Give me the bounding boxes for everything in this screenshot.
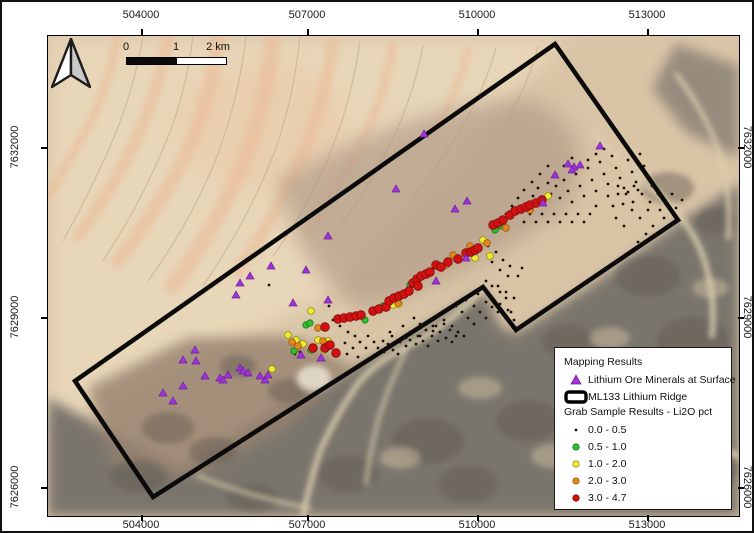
sample-dot <box>485 317 488 320</box>
sample-dot <box>268 284 271 287</box>
sample-dot <box>415 343 418 346</box>
sample-dot <box>651 185 654 188</box>
scale-bar-rect <box>126 57 227 65</box>
axis-label-top: 504000 <box>123 9 160 21</box>
sample-dot <box>671 193 674 196</box>
sample-dot <box>473 323 476 326</box>
sample-dot <box>649 201 652 204</box>
sample-dot <box>531 181 534 184</box>
sample-dot <box>409 339 412 342</box>
sample-dot <box>269 366 276 373</box>
sample-dot <box>617 185 620 188</box>
sample-dot <box>451 341 454 344</box>
sample-dot <box>397 353 400 356</box>
sample-dot <box>681 199 684 202</box>
sample-dot <box>444 258 453 267</box>
legend-class-label: 2.0 - 3.0 <box>588 475 627 487</box>
sample-dot <box>577 213 580 216</box>
sample-dot <box>461 311 464 314</box>
sample-dot <box>567 190 570 193</box>
sample-dot <box>382 340 385 343</box>
sample-dot <box>485 280 488 283</box>
sample-dot <box>357 311 366 320</box>
sample-dot <box>354 335 357 338</box>
sample-dot <box>449 329 452 332</box>
sample-dot <box>485 301 488 304</box>
axis-tick <box>41 147 47 149</box>
legend-class-row: 2.0 - 3.0 <box>564 472 725 489</box>
sample-dot <box>367 335 370 338</box>
sample-dot <box>637 189 640 192</box>
sample-dot <box>579 185 582 188</box>
axis-tick <box>738 147 744 149</box>
sample-dot <box>443 323 446 326</box>
sample-dot <box>623 225 626 228</box>
axis-label-left: 7629000 <box>9 296 21 339</box>
sample-dot <box>652 225 655 228</box>
sample-dot <box>627 191 630 194</box>
sample-dot <box>537 187 540 190</box>
sample-dot <box>455 305 458 308</box>
class-dot-icon <box>564 458 588 470</box>
sample-dot <box>409 331 412 334</box>
axis-tick <box>41 317 47 319</box>
sample-dot <box>435 325 438 328</box>
sample-dot <box>419 335 422 338</box>
sample-dot <box>309 344 318 353</box>
sample-dot <box>510 311 513 314</box>
sample-dot <box>595 205 598 208</box>
axis-tick <box>477 29 479 35</box>
sample-dot <box>633 185 636 188</box>
legend-grab-classes: 0.0 - 0.50.5 - 1.01.0 - 2.02.0 - 3.03.0 … <box>564 421 725 506</box>
sample-dot <box>414 282 423 291</box>
sample-dot <box>532 195 535 198</box>
sample-dot <box>383 351 386 354</box>
sample-dot <box>499 269 502 272</box>
sample-dot <box>295 343 302 350</box>
axis-tick <box>477 515 479 521</box>
sample-dot <box>491 297 494 300</box>
map-legend: Mapping Results Lithium Ore Minerals at … <box>554 347 732 510</box>
sample-dot <box>632 201 635 204</box>
sample-dot <box>332 349 341 358</box>
sample-dot <box>307 320 313 326</box>
sample-dot <box>344 342 347 345</box>
sample-dot <box>393 343 396 346</box>
sample-dot <box>509 265 512 268</box>
sample-dot <box>641 193 644 196</box>
legend-class-row: 1.0 - 2.0 <box>564 455 725 472</box>
sample-dot <box>643 165 646 168</box>
sample-dot <box>427 345 430 348</box>
sample-dot <box>499 291 502 294</box>
sample-dot <box>474 244 483 253</box>
axis-tick <box>307 29 309 35</box>
sample-dot <box>595 190 598 193</box>
sample-dot <box>583 221 586 224</box>
sample-dot <box>571 221 574 224</box>
sample-dot <box>405 337 408 340</box>
axis-tick <box>41 487 47 489</box>
sample-dot <box>611 155 614 158</box>
sample-dot <box>521 267 524 270</box>
legend-class-label: 0.0 - 0.5 <box>588 424 627 436</box>
sample-dot <box>583 195 586 198</box>
sample-dot <box>503 225 510 232</box>
sample-dot <box>591 179 594 182</box>
sample-dot <box>517 197 520 200</box>
sample-dot <box>454 255 463 264</box>
sample-dot <box>315 325 322 332</box>
legend-item-label: Lithium Ore Minerals at Surface <box>588 374 736 386</box>
sample-dot <box>477 293 480 296</box>
sample-dot <box>619 177 622 180</box>
sample-dot <box>603 173 606 176</box>
sample-dot <box>402 325 405 328</box>
sample-dot <box>523 221 526 224</box>
sample-dot <box>289 339 296 346</box>
sample-dot <box>451 325 454 328</box>
sample-dot <box>502 259 505 262</box>
sample-dot <box>587 159 590 162</box>
sample-dot <box>479 311 482 314</box>
sample-dot <box>499 303 502 306</box>
sample-dot <box>607 195 610 198</box>
sample-dot <box>571 201 574 204</box>
sample-dot <box>463 335 466 338</box>
sample-dot <box>308 308 315 315</box>
class-dot-icon <box>564 492 588 504</box>
sample-dot <box>507 275 510 278</box>
legend-mapping-items: Lithium Ore Minerals at SurfaceML133 Lit… <box>564 371 725 405</box>
sample-dot <box>352 347 355 350</box>
sample-dot <box>665 201 668 204</box>
sample-dot <box>505 297 508 300</box>
axis-label-left: 7632000 <box>9 126 21 169</box>
sample-dot <box>523 189 526 192</box>
sample-dot <box>622 203 625 206</box>
map-figure-page: 0 1 2 km Mapping Results Lithium Ore Min… <box>0 0 754 533</box>
scale-label-0: 0 <box>123 41 129 53</box>
sample-dot <box>645 233 648 236</box>
sample-dot <box>497 285 500 288</box>
axis-label-top: 507000 <box>289 9 326 21</box>
sample-dot <box>657 193 660 196</box>
sample-dot <box>595 153 598 156</box>
legend-class-label: 3.0 - 4.7 <box>588 492 627 504</box>
sample-dot <box>346 353 349 356</box>
sample-dot <box>547 165 550 168</box>
legend-item-label: ML133 Lithium Ridge <box>588 391 687 403</box>
sample-dot <box>439 331 442 334</box>
sample-dot <box>617 193 620 196</box>
triangle-symbol-icon <box>564 373 588 387</box>
sample-dot <box>615 167 618 170</box>
sample-dot <box>539 173 542 176</box>
class-dot-icon <box>564 475 588 487</box>
sample-dot <box>589 213 592 216</box>
axis-tick <box>141 29 143 35</box>
sample-dot <box>391 335 394 338</box>
sample-dot <box>425 329 428 332</box>
sample-dot <box>373 341 376 344</box>
sample-dot <box>639 153 642 156</box>
sample-dot <box>563 179 566 182</box>
sample-dot <box>377 347 380 350</box>
sample-dot <box>487 253 494 260</box>
sample-dot <box>328 305 331 308</box>
legend-class-row: 0.5 - 1.0 <box>564 438 725 455</box>
sample-dot <box>399 341 402 344</box>
sample-dot <box>631 171 634 174</box>
sample-dot <box>647 209 650 212</box>
scale-label-1: 1 <box>173 41 179 53</box>
sample-dot <box>426 268 435 277</box>
scale-bar-black-half <box>127 58 177 64</box>
sample-dot <box>285 332 292 339</box>
sample-dot <box>405 345 408 348</box>
sample-dot <box>635 181 638 184</box>
boundary-symbol-icon <box>564 390 588 404</box>
sample-dot <box>413 317 416 320</box>
legend-class-row: 0.0 - 0.5 <box>564 421 725 438</box>
legend-item: ML133 Lithium Ridge <box>564 388 725 405</box>
sample-dot <box>625 193 628 196</box>
sample-dot <box>547 221 550 224</box>
scale-label-2km: 2 km <box>206 41 230 53</box>
axis-label-top: 510000 <box>459 9 496 21</box>
sample-dot <box>659 209 662 212</box>
sample-dot <box>559 197 562 200</box>
sample-dot <box>491 261 494 264</box>
sample-dot <box>607 183 610 186</box>
sample-dot <box>555 185 558 188</box>
sample-dot <box>612 205 615 208</box>
sample-dot <box>467 317 470 320</box>
axis-tick <box>307 515 309 521</box>
sample-dot <box>392 349 395 352</box>
legend-class-row: 3.0 - 4.7 <box>564 489 725 506</box>
sample-dot <box>389 331 392 334</box>
axis-tick <box>141 515 143 521</box>
sample-dot <box>473 305 476 308</box>
legend-item: Lithium Ore Minerals at Surface <box>564 371 725 388</box>
sample-dot <box>639 217 642 220</box>
axis-label-left: 7626000 <box>9 466 21 509</box>
axis-tick <box>647 29 649 35</box>
sample-dot <box>631 209 634 212</box>
sample-dot <box>495 251 498 254</box>
sample-dot <box>445 337 448 340</box>
sample-dot <box>422 340 425 343</box>
sample-dot <box>535 221 538 224</box>
sample-dot <box>675 207 678 210</box>
sample-dot <box>437 340 440 343</box>
sample-dot <box>365 347 368 350</box>
legend-class-label: 0.5 - 1.0 <box>588 441 627 453</box>
sample-dot <box>491 285 494 288</box>
axis-tick <box>738 487 744 489</box>
sample-dot <box>484 240 491 247</box>
sample-dot <box>627 159 630 162</box>
sample-dot <box>432 330 435 333</box>
sample-dot <box>419 323 422 326</box>
axis-tick <box>738 317 744 319</box>
sample-dot <box>647 175 650 178</box>
sample-dot <box>387 343 390 346</box>
sample-dot <box>547 182 550 185</box>
sample-dot <box>615 217 618 220</box>
class-dot-icon <box>564 424 588 436</box>
legend-title-mapping: Mapping Results <box>564 356 725 368</box>
sample-dot <box>553 213 556 216</box>
sample-dot <box>587 167 590 170</box>
sample-dot <box>455 335 458 338</box>
sample-dot <box>565 213 568 216</box>
sample-dot <box>559 221 562 224</box>
sample-dot <box>431 335 434 338</box>
sample-dot <box>457 331 460 334</box>
sample-dot <box>497 311 500 314</box>
sample-dot <box>359 341 362 344</box>
sample-dot <box>491 306 494 309</box>
sample-dot <box>326 341 335 350</box>
sample-dot <box>507 309 510 312</box>
class-dot-icon <box>564 441 588 453</box>
north-arrow <box>51 38 91 95</box>
sample-dot <box>357 356 360 359</box>
sample-dot <box>541 213 544 216</box>
sample-dot <box>571 157 574 160</box>
sample-dot <box>347 331 350 334</box>
sample-dot <box>517 275 520 278</box>
axis-label-top: 513000 <box>629 9 666 21</box>
sample-dot <box>513 319 516 322</box>
sample-dot <box>339 325 342 328</box>
legend-title-grab: Grab Sample Results - Li2O pct <box>564 406 725 418</box>
sample-dot <box>321 323 330 332</box>
sample-dot <box>432 325 435 328</box>
sample-dot <box>623 187 626 190</box>
sample-dot <box>405 287 414 296</box>
sample-dot <box>513 297 516 300</box>
sample-dot <box>655 233 658 236</box>
sample-dot <box>663 217 666 220</box>
sample-dot <box>443 319 446 322</box>
legend-class-label: 1.0 - 2.0 <box>588 458 627 470</box>
sample-dot <box>505 291 508 294</box>
sample-dot <box>436 315 439 318</box>
sample-dot <box>637 241 640 244</box>
sample-dot <box>599 161 602 164</box>
sample-dot <box>465 299 468 302</box>
axis-tick <box>647 515 649 521</box>
map-canvas: 0 1 2 km Mapping Results Lithium Ore Min… <box>47 35 740 517</box>
